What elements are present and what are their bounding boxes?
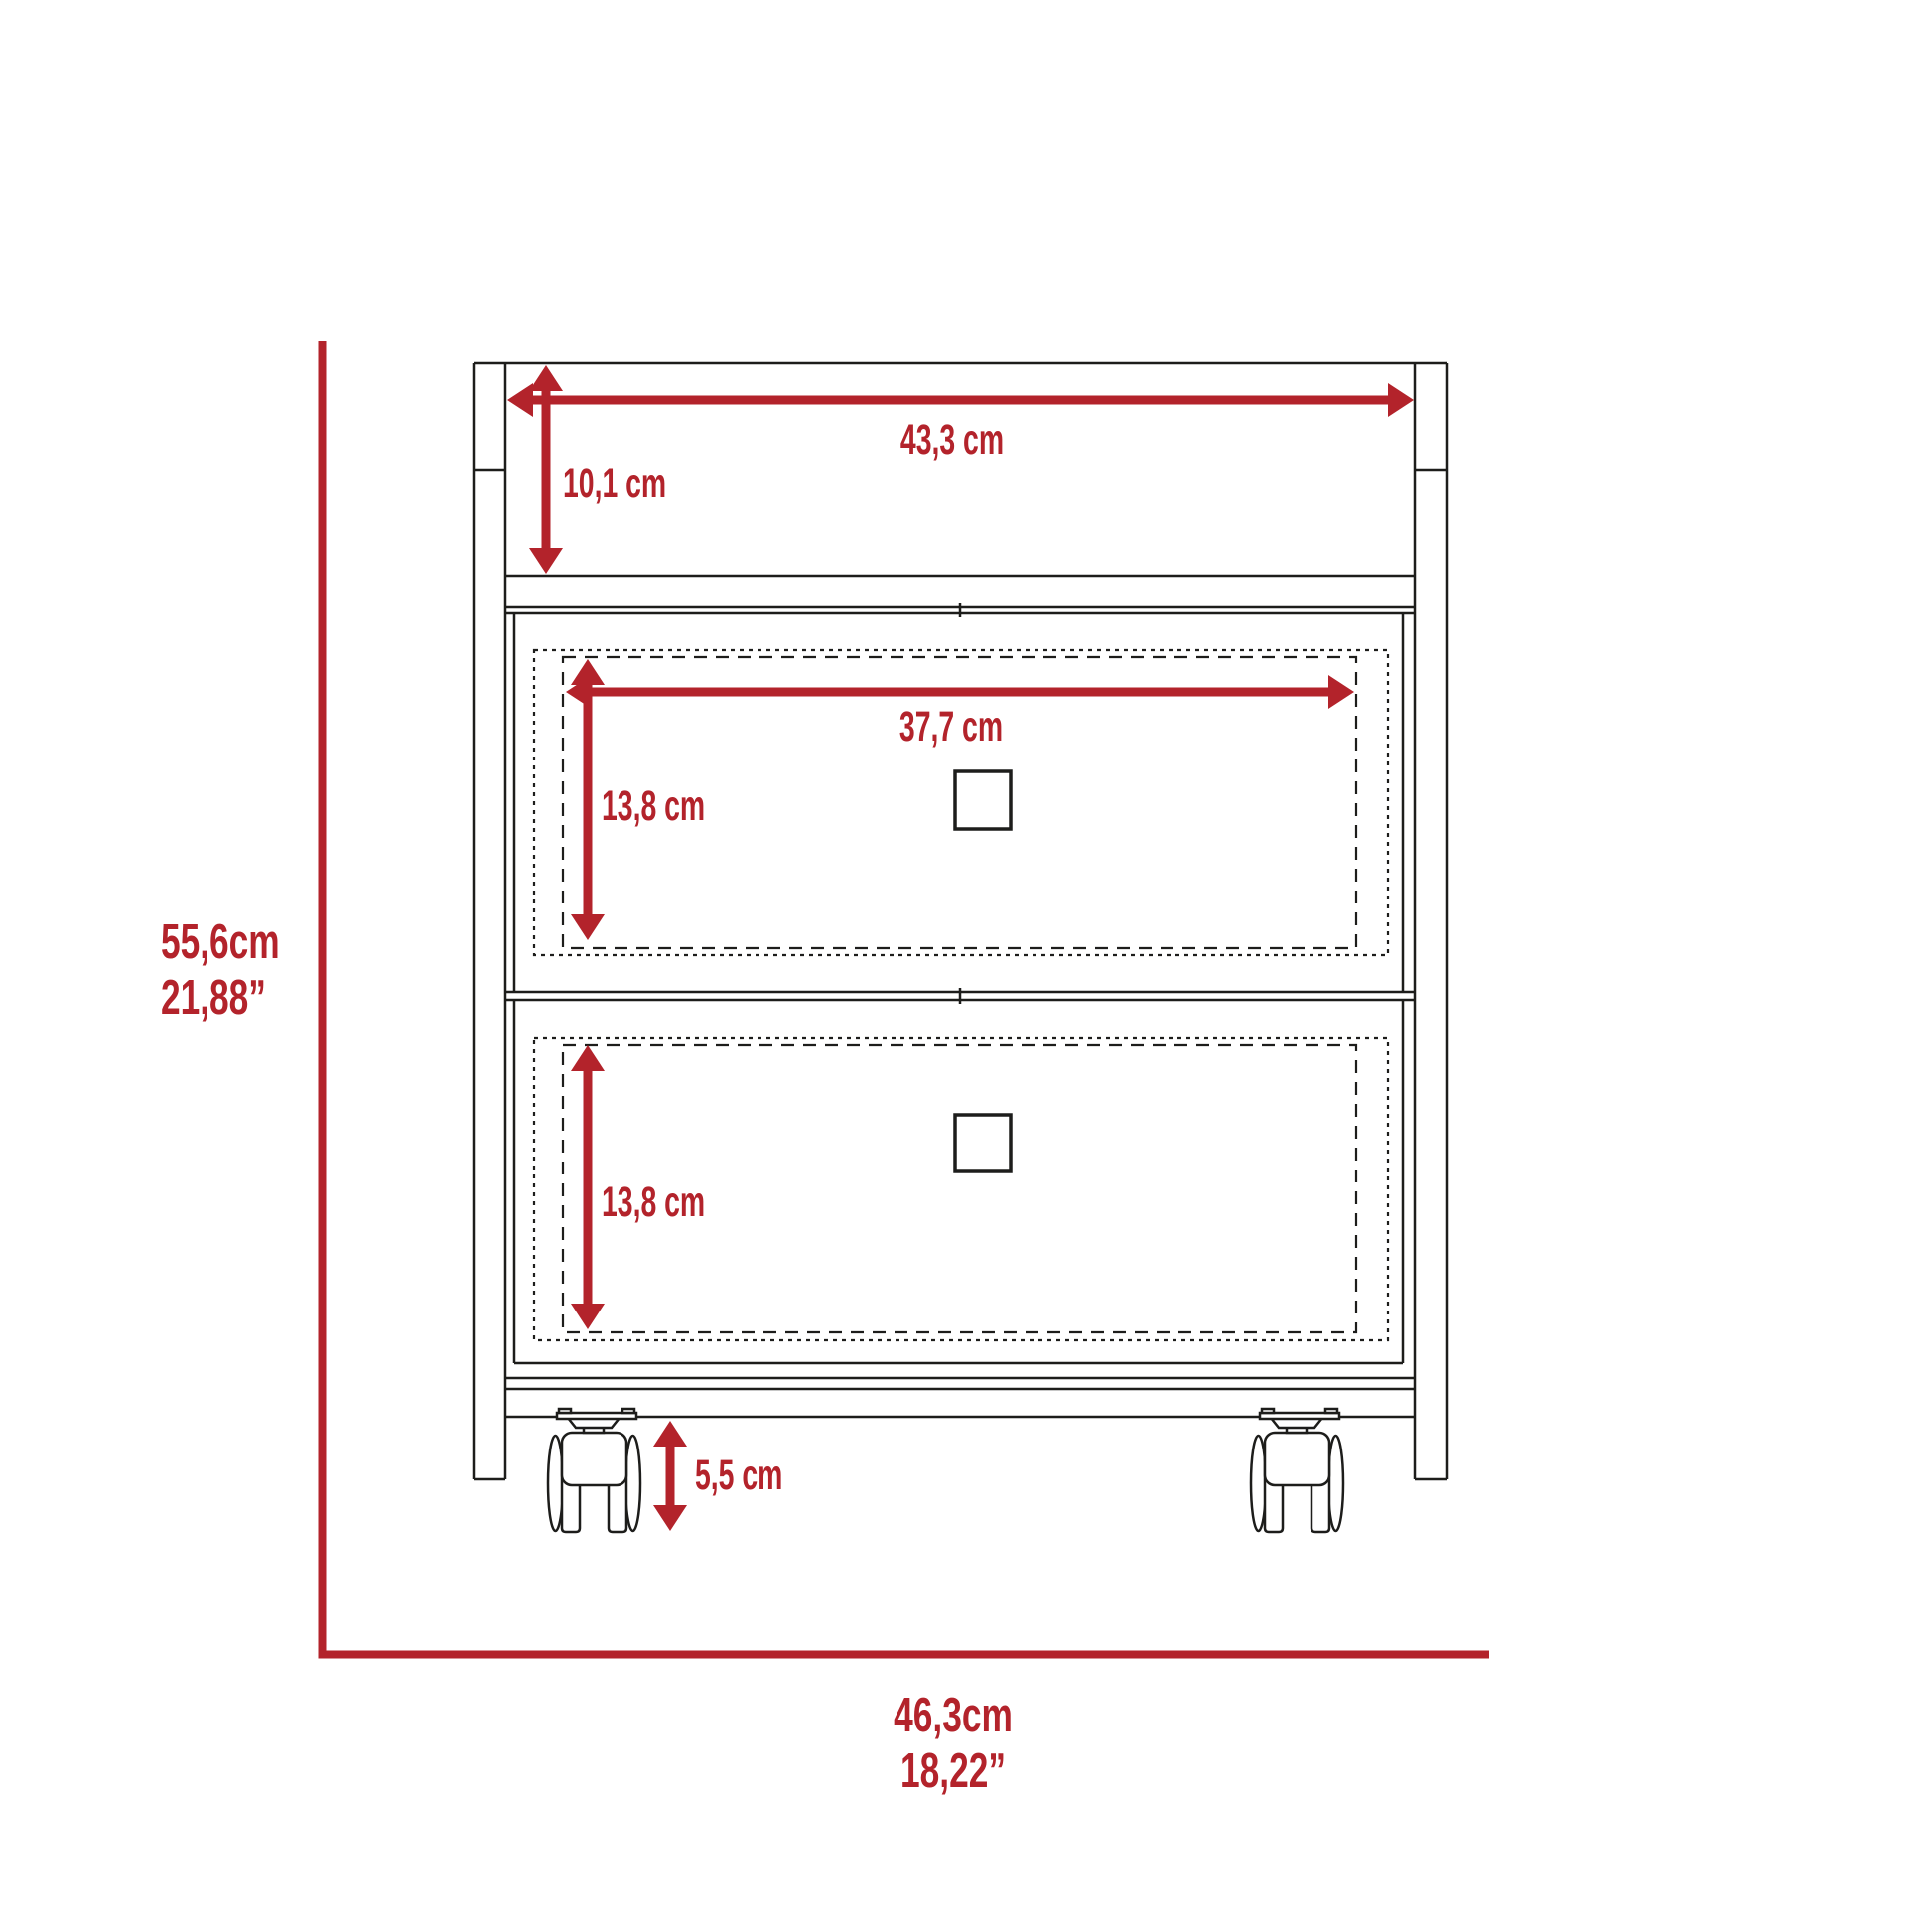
drawer-width-label: 37,7 cm bbox=[899, 704, 1003, 750]
left-caster bbox=[548, 1409, 640, 1532]
lower-drawer-handle bbox=[955, 1115, 1011, 1171]
overall-height-label: 55,6cm 21,88” bbox=[161, 914, 280, 1027]
overall-height-in: 21,88” bbox=[161, 970, 280, 1026]
furniture-dimension-drawing bbox=[0, 0, 1932, 1932]
right-caster bbox=[1251, 1409, 1343, 1532]
lower-drawer-height-label: 13,8 cm bbox=[602, 1179, 705, 1225]
overall-width-label: 46,3cm 18,22” bbox=[894, 1688, 1013, 1800]
top-width-label: 43,3 cm bbox=[900, 417, 1004, 463]
cabinet-body bbox=[474, 363, 1447, 1479]
overall-width-cm: 46,3cm bbox=[894, 1688, 1013, 1743]
diagram-canvas: 43,3 cm 10,1 cm 37,7 cm 13,8 cm 13,8 cm … bbox=[0, 0, 1932, 1932]
overall-height-cm: 55,6cm bbox=[161, 914, 280, 970]
upper-drawer-handle bbox=[955, 771, 1011, 829]
top-compartment-height-label: 10,1 cm bbox=[563, 461, 666, 506]
overall-width-in: 18,22” bbox=[894, 1743, 1013, 1799]
caster-height-label: 5,5 cm bbox=[695, 1452, 782, 1498]
upper-drawer-height-label: 13,8 cm bbox=[602, 783, 705, 829]
